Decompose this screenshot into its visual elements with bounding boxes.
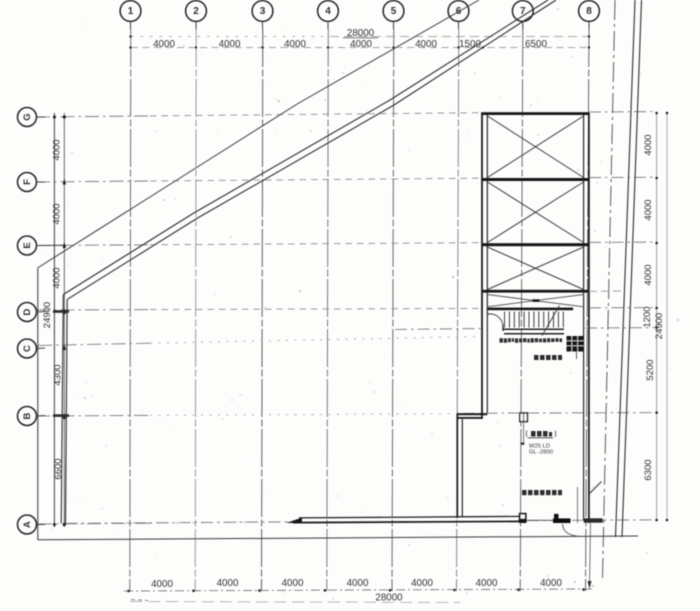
svg-text:4000: 4000: [52, 267, 63, 288]
svg-text:C: C: [22, 345, 33, 352]
svg-text:A: A: [22, 521, 33, 528]
svg-text:6500: 6500: [525, 39, 547, 50]
svg-text:G: G: [22, 113, 33, 120]
svg-text:4000: 4000: [217, 578, 239, 589]
svg-text:28000: 28000: [375, 593, 403, 604]
svg-text:4: 4: [325, 6, 331, 17]
svg-text:6600: 6600: [53, 458, 64, 479]
svg-text:1: 1: [128, 6, 134, 17]
svg-text:4000: 4000: [347, 578, 369, 589]
svg-text:4000: 4000: [52, 139, 63, 160]
svg-text:6300: 6300: [643, 459, 654, 480]
svg-text:24900: 24900: [42, 302, 53, 328]
svg-text:D: D: [22, 308, 33, 315]
svg-text:4000: 4000: [153, 39, 175, 50]
svg-text:4300: 4300: [53, 364, 64, 385]
svg-text:1200: 1200: [642, 306, 653, 327]
svg-text:2: 2: [193, 6, 199, 17]
svg-text:8: 8: [586, 6, 592, 17]
svg-text:3: 3: [260, 6, 266, 17]
svg-text:4000: 4000: [540, 578, 562, 589]
svg-text:4000: 4000: [284, 39, 306, 50]
svg-text:4000: 4000: [151, 579, 173, 590]
svg-text:GL -2800: GL -2800: [529, 450, 553, 456]
svg-text:F: F: [22, 179, 33, 185]
svg-text:B: B: [22, 412, 33, 419]
svg-text:5: 5: [391, 6, 397, 17]
svg-text:4000: 4000: [643, 264, 654, 285]
svg-text:24900: 24900: [654, 313, 665, 339]
svg-text:4000: 4000: [52, 203, 63, 224]
svg-text:4000: 4000: [411, 578, 433, 589]
svg-text:4000: 4000: [219, 39, 241, 50]
svg-text:4000: 4000: [643, 199, 654, 220]
svg-text:4000: 4000: [282, 578, 304, 589]
svg-text:4000: 4000: [476, 578, 498, 589]
svg-text:4000: 4000: [350, 39, 372, 50]
svg-text:E: E: [22, 242, 33, 248]
svg-text:4000: 4000: [415, 39, 437, 50]
svg-text:4000: 4000: [643, 134, 654, 155]
svg-text:5200: 5200: [645, 359, 656, 380]
